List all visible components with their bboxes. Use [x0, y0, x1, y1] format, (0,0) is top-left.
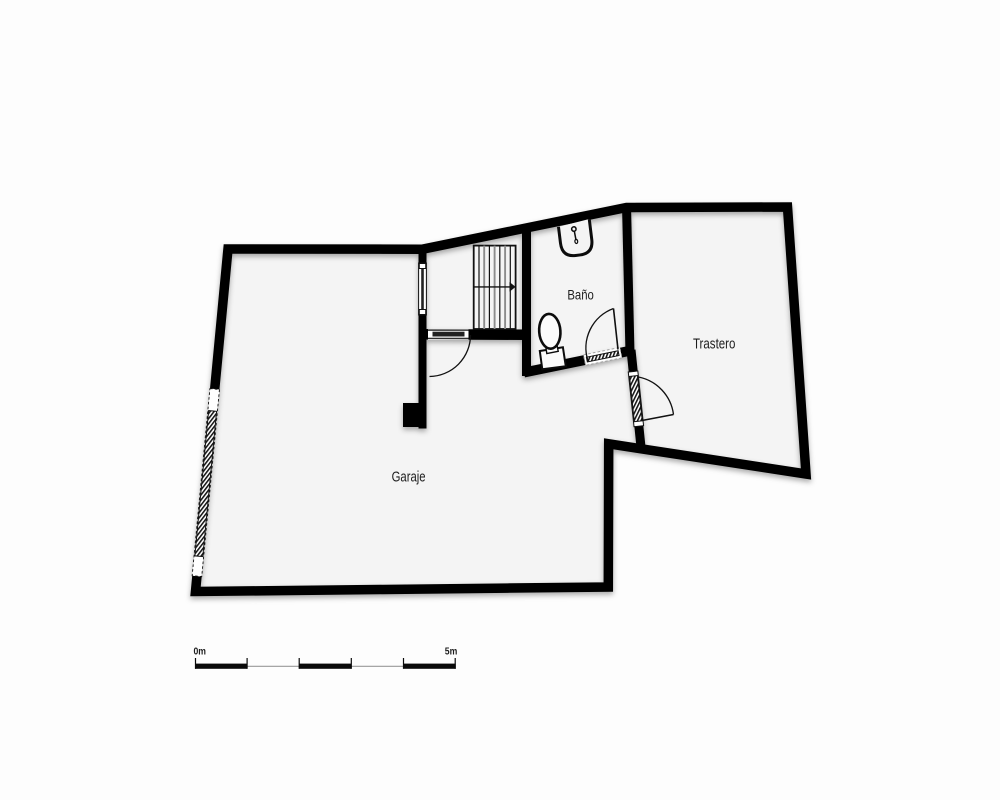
- svg-text:Baño: Baño: [567, 287, 594, 303]
- svg-text:0m: 0m: [194, 647, 207, 658]
- svg-text:5m: 5m: [445, 647, 458, 658]
- svg-text:Garaje: Garaje: [392, 468, 426, 485]
- svg-text:Trastero: Trastero: [693, 336, 736, 353]
